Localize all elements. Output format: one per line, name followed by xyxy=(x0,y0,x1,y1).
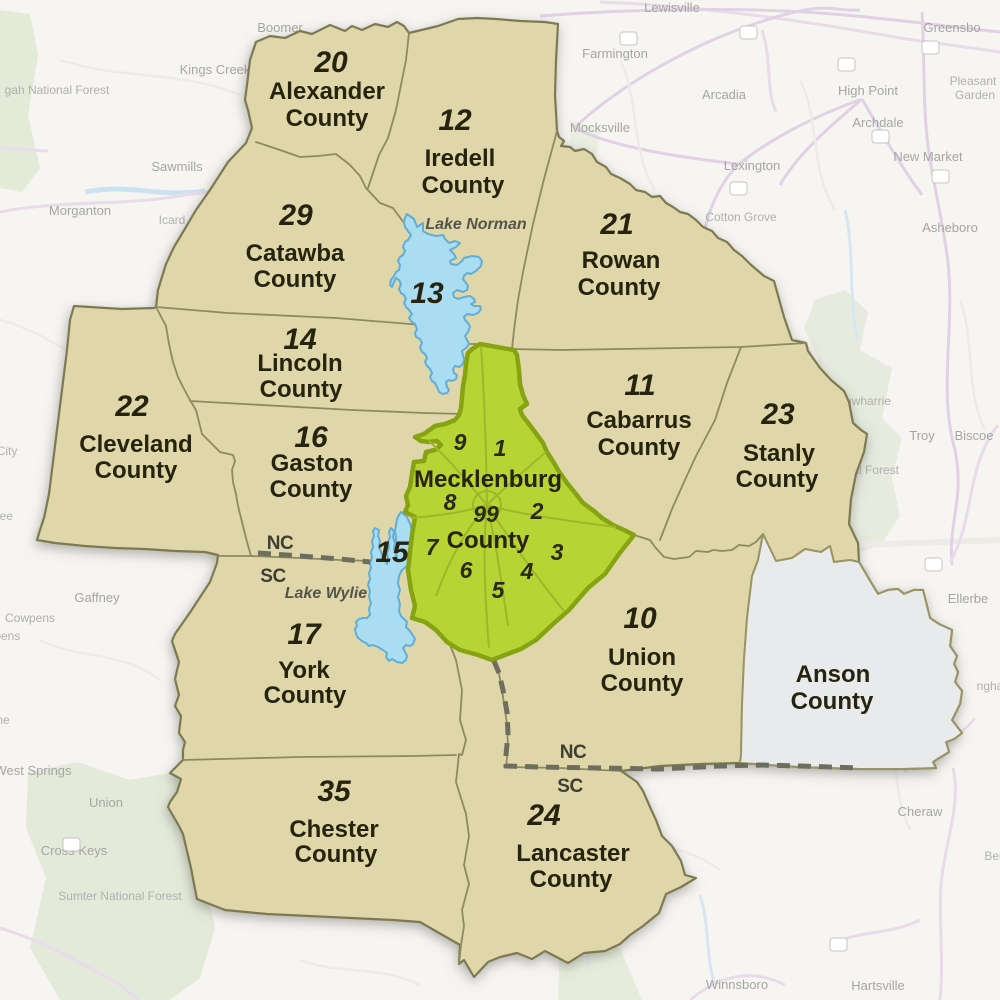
svg-text:Biscoe: Biscoe xyxy=(954,428,993,443)
svg-text:Lake Wylie: Lake Wylie xyxy=(285,585,368,602)
svg-text:2: 2 xyxy=(530,498,544,524)
svg-text:Icard: Icard xyxy=(159,213,186,227)
svg-text:County: County xyxy=(264,682,347,709)
svg-text:County: County xyxy=(422,172,505,199)
svg-text:SC: SC xyxy=(260,566,286,587)
svg-text:County: County xyxy=(270,476,353,503)
svg-text:35: 35 xyxy=(317,775,352,808)
svg-text:NC: NC xyxy=(267,533,294,554)
svg-text:Anson: Anson xyxy=(796,661,871,688)
svg-text:12: 12 xyxy=(438,104,472,137)
svg-text:Gaffney: Gaffney xyxy=(74,590,120,605)
svg-text:99: 99 xyxy=(473,501,499,527)
svg-text:Asheboro: Asheboro xyxy=(922,220,978,235)
svg-text:wpens: wpens xyxy=(0,629,20,643)
svg-text:Alexander: Alexander xyxy=(269,78,385,105)
svg-text:uwharrie: uwharrie xyxy=(845,394,891,408)
svg-text:5: 5 xyxy=(492,577,506,603)
svg-text:17: 17 xyxy=(287,618,322,651)
svg-text:Hartsville: Hartsville xyxy=(851,978,904,993)
svg-text:Arcadia: Arcadia xyxy=(702,87,747,102)
svg-text:6: 6 xyxy=(460,557,473,583)
svg-text:Union: Union xyxy=(608,644,676,671)
svg-text:gah National Forest: gah National Forest xyxy=(5,83,110,97)
svg-text:4: 4 xyxy=(520,558,534,584)
svg-text:Cotton Grove: Cotton Grove xyxy=(705,210,777,224)
svg-text:29: 29 xyxy=(278,199,313,232)
svg-text:Sumter National Forest: Sumter National Forest xyxy=(58,889,182,903)
svg-text:County: County xyxy=(286,105,369,132)
svg-text:County: County xyxy=(295,841,378,868)
svg-text:Kings Creek: Kings Creek xyxy=(180,62,251,77)
svg-text:11: 11 xyxy=(624,369,655,402)
svg-text:Cowpens: Cowpens xyxy=(5,611,55,625)
svg-text:City: City xyxy=(0,444,17,458)
svg-text:County: County xyxy=(260,376,343,403)
svg-text:Farmington: Farmington xyxy=(582,46,648,61)
svg-text:Lewisville: Lewisville xyxy=(644,0,700,15)
svg-text:9: 9 xyxy=(454,429,467,455)
svg-text:Rowan: Rowan xyxy=(582,247,661,274)
svg-text:County: County xyxy=(95,457,178,484)
svg-text:County: County xyxy=(254,266,337,293)
svg-text:Sawmills: Sawmills xyxy=(151,159,203,174)
svg-text:Lincoln: Lincoln xyxy=(257,350,342,377)
svg-text:10: 10 xyxy=(623,602,657,635)
svg-text:Mecklenburg: Mecklenburg xyxy=(414,466,562,493)
svg-text:County: County xyxy=(791,688,874,715)
svg-text:Troy: Troy xyxy=(909,428,935,443)
svg-text:County: County xyxy=(447,527,530,554)
svg-text:Winnsboro: Winnsboro xyxy=(706,977,768,992)
svg-text:New Market: New Market xyxy=(893,149,963,164)
svg-text:High Point: High Point xyxy=(838,83,898,98)
svg-text:Archdale: Archdale xyxy=(852,115,903,130)
svg-text:13: 13 xyxy=(410,277,444,310)
svg-text:County: County xyxy=(601,670,684,697)
svg-text:Garden: Garden xyxy=(955,88,995,102)
svg-text:Lexington: Lexington xyxy=(724,158,780,173)
svg-text:24: 24 xyxy=(526,799,561,832)
svg-text:County: County xyxy=(598,434,681,461)
svg-text:8: 8 xyxy=(444,489,457,515)
svg-text:22: 22 xyxy=(114,390,149,423)
svg-text:Ben: Ben xyxy=(984,849,1000,863)
svg-text:Ellerbe: Ellerbe xyxy=(948,591,988,606)
svg-text:3: 3 xyxy=(551,539,564,565)
svg-text:20: 20 xyxy=(313,46,348,79)
svg-text:County: County xyxy=(736,466,819,493)
svg-text:21: 21 xyxy=(599,208,633,241)
svg-text:7: 7 xyxy=(426,534,440,560)
svg-text:Mocksville: Mocksville xyxy=(570,120,630,135)
svg-text:Cleveland: Cleveland xyxy=(79,431,192,458)
svg-text:Lake Norman: Lake Norman xyxy=(425,216,527,233)
svg-text:Iredell: Iredell xyxy=(425,145,496,172)
svg-text:ne: ne xyxy=(0,713,10,727)
svg-text:Pleasant: Pleasant xyxy=(950,74,997,88)
svg-text:hee: hee xyxy=(0,509,13,523)
svg-text:Greensbo: Greensbo xyxy=(923,20,980,35)
svg-text:Chester: Chester xyxy=(289,816,378,843)
svg-text:ngham: ngham xyxy=(977,679,1000,693)
svg-text:1: 1 xyxy=(494,435,507,461)
svg-text:Catawba: Catawba xyxy=(246,240,345,267)
svg-text:Lancaster: Lancaster xyxy=(516,840,629,867)
svg-text:SC: SC xyxy=(557,776,583,797)
svg-text:15: 15 xyxy=(375,536,410,569)
svg-text:West Springs: West Springs xyxy=(0,763,72,778)
svg-text:Gaston: Gaston xyxy=(271,450,354,477)
svg-text:NC: NC xyxy=(560,742,587,763)
svg-text:Union: Union xyxy=(89,795,123,810)
svg-text:Morganton: Morganton xyxy=(49,203,111,218)
svg-text:York: York xyxy=(278,657,330,684)
svg-text:23: 23 xyxy=(760,398,795,431)
svg-text:County: County xyxy=(530,866,613,893)
svg-text:Cabarrus: Cabarrus xyxy=(586,407,691,434)
svg-text:Cheraw: Cheraw xyxy=(898,804,943,819)
svg-text:Stanly: Stanly xyxy=(743,440,816,467)
svg-text:County: County xyxy=(578,274,661,301)
